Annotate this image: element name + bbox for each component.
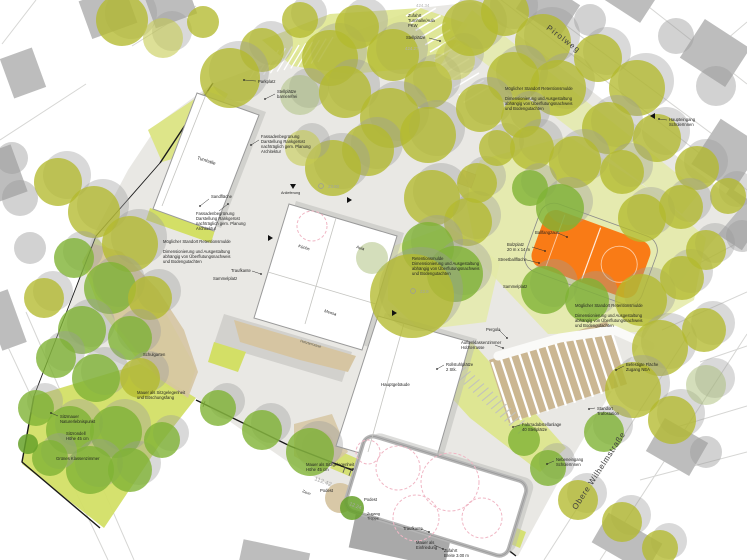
label-stellplätze-leader-dot [439,40,441,42]
tree [187,6,219,38]
label-podest-line: Podest [364,497,378,502]
label-zaun-group: Zaun [302,489,312,496]
label-zufahrt: ZufahrtBreite 3.00 m [444,548,469,558]
context-building [0,289,27,351]
label-podest: Podest [320,488,334,493]
label-parkplatz-leader-dot [243,79,245,81]
tree [658,18,694,54]
label-befestigte-fläche-line: Zugang NEA [626,367,650,372]
label-möglicher-standort-retentionsmulde-line: und Bodengutachten [163,259,202,264]
label-möglicher-standort-retentionsmulde-line: Möglicher Standort Retentionsmulde [163,239,231,244]
label-zugang-line: Zugang [367,512,380,516]
tree [24,278,64,318]
label-sitzmauer-line: Naturerlebnispunkt [60,419,96,424]
label-ballfangzaun: Ballfangzaun [535,230,560,235]
label-grünes-klassenzimmer-group: Grünes Klassenzimmer [56,456,100,461]
label-424-34-group: 424.34 [416,3,430,8]
label-rollstuhlplätze-line: 2 Stk. [446,367,457,372]
label-stellplätze: Stellplätze [406,35,426,40]
label-mauer-als-sitzgelegenheit-line: Höhe 45 cm [306,467,329,472]
tree [696,66,736,106]
label-22-9-line: 22.9 [420,289,429,294]
label-23-60-group: 23.60 [328,184,340,189]
label-streetballfläche: Streetballfläche [498,257,528,262]
label-außenklassenzimmer-leader-dot [502,347,504,349]
label-retentionsmulde-line: und Bodengutachten [412,271,451,276]
label-sammelplatz-group: Sammelplatz [213,276,237,281]
label-möglicher-standort-retentionsmulde-line: Möglicher Standort Retentionsmulde [505,86,573,91]
label-nebeneingang-line: SchülerInnen [556,462,581,467]
label-hauptgebäude-line: Hauptgebäude [381,382,410,387]
label-rollstuhlplätze-leader-dot [436,368,438,370]
label-haupteingang: HaupteingangSchülerInnen [669,117,696,127]
label-grünes-klassenzimmer: Grünes Klassenzimmer [56,456,100,461]
tree [54,238,94,278]
label-sammelplatz-group: Sammelplatz [503,284,527,289]
context-building [0,47,46,98]
tree [521,266,569,314]
label-traufkante-line: Traufkante [231,268,252,273]
label-standort-line: Trafostation [597,411,620,416]
label-sammelplatz-line: Sammelplatz [213,276,237,281]
tree [200,390,236,426]
tree [618,194,666,242]
label-befestigte-fläche-leader-dot [615,369,617,371]
label-streetballfläche-line: Streetballfläche [498,257,528,262]
label-parkplatz-line: Parkplatz [258,79,275,84]
label-zaun-line: Zaun [302,489,312,496]
tree [600,150,644,194]
tree [14,232,46,264]
label-podest: Podest [364,497,378,502]
tree [2,180,38,216]
label-23-60: 23.60 [328,184,340,189]
label-zufahrt-line: Breite 3.00 m [444,553,469,558]
label-haupteingang-leader-dot [658,118,660,120]
label-22-9: 22.9 [420,289,429,294]
label-sammelplatz-line: Sammelplatz [503,284,527,289]
label-podest-group: Podest [364,497,378,502]
label-zufahrt-line: PKW [408,23,418,28]
label-hauptgebäude: Hauptgebäude [381,382,410,387]
tree [96,0,148,46]
label-424-27-line: 424.27 [405,46,419,51]
tree [18,434,38,454]
label-zugang-line: Treppe [367,516,379,520]
label-stellplätze-leader-dot [264,98,266,100]
tree [72,354,120,402]
label-standort-leader-dot [588,408,590,410]
tree [682,308,726,352]
label-stellplätze: Stellplätzebarrierefrei [277,89,297,99]
tree [457,163,497,203]
label-streetballfläche-leader-dot [538,262,540,264]
label-zaun: Zaun [302,489,312,496]
label-zufahrt-group: ZufahrtBreite 3.00 m [444,548,469,558]
label-podest-line: Podest [320,488,334,493]
label-grünes-klassenzimmer-line: Grünes Klassenzimmer [56,456,100,461]
label-parkplatz: Parkplatz [258,79,275,84]
label-pergola-line: Pergola [486,327,501,332]
label-traufkante-leader-dot [260,273,262,275]
tree [686,230,726,270]
label-bolzplatz-line: 20 m x 14 m [507,247,531,252]
tree [0,142,28,174]
label-traufkante: Traufkante [403,526,424,531]
label-23-60-line: 23.60 [328,184,340,189]
tree [648,396,696,444]
label-fahrradabstellanlage-leader-dot [512,426,514,428]
label-424-27: 424.27 [405,46,419,51]
label-fassadenbegrünung-leader-dot [250,144,252,146]
label-pergola-leader-dot [506,337,508,339]
label-zugang-group: ZugangTreppe [367,512,380,520]
label-traufkante-leader-dot [428,531,430,533]
label-424-34: 424.34 [416,3,430,8]
label-stellplätze-line: Stellplätze [406,35,426,40]
label-anlieferung: Anlieferung [281,191,300,195]
label-haupteingang-line: SchülerInnen [669,122,694,127]
label-nebeneingang-leader-dot [546,463,548,465]
label-schulgarten-group: Schulgarten [143,352,166,357]
label-mauer-als-line: Einfriedung [416,545,438,550]
label-traufkante: Traufkante [231,268,252,273]
tree [536,184,584,232]
context-building [603,0,661,23]
tree [510,126,554,170]
tree [200,48,260,108]
label-424-27-group: 424.27 [405,46,419,51]
tree [282,2,318,38]
tree [710,178,746,214]
tree [574,4,606,36]
label-anlieferung-line: Anlieferung [281,191,300,195]
tree [479,130,515,166]
tree [530,450,566,486]
label-22-9-group: 22.9 [420,289,429,294]
label-hauptgebäude-group: Hauptgebäude [381,382,410,387]
label-möglicher-standort-retentionsmulde-line: Möglicher Standort Retentionsmulde [575,303,643,308]
label-podest-group: Podest [320,488,334,493]
tree [36,338,76,378]
tree [456,84,504,132]
label-sammelplatz: Sammelplatz [503,284,527,289]
label-sitzrondell-line: Höhe 45 cm [66,436,89,441]
label-pergola: Pergola [486,327,501,332]
label-mauer-als-sitzgelegenheit-leader-dot [352,468,354,470]
label-möglicher-standort-retentionsmulde-line: und Bodengutachten [575,323,614,328]
tree [143,18,183,58]
label-zugang: ZugangTreppe [367,512,380,520]
label-sandfläche: Sandfläche [211,194,233,199]
label-außenklassenzimmer-line: Holzterrasse [461,345,485,350]
tree [659,185,703,229]
label-traufkante-line: Traufkante [403,526,424,531]
label-sandfläche-line: Sandfläche [211,194,233,199]
label-424-34-line: 424.34 [416,3,430,8]
label-bolzplatz-leader-dot [544,250,546,252]
tree [686,365,726,405]
label-mauer-als-sitzgelegenheit-line: und Böschungsfang [137,395,175,400]
label-stellplätze-line: barrierefrei [277,94,297,99]
label-nebeneingang: NebeneingangSchülerInnen [556,457,584,467]
site-plan: ParkplatzStellplätzebarrierefreiZufahrtT… [0,0,747,560]
label-schulgarten-line: Schulgarten [143,352,166,357]
label-sitzmauer-leader-dot [50,412,52,414]
label-möglicher-standort-retentionsmulde-line: und Bodengutachten [505,106,544,111]
label-sammelplatz: Sammelplatz [213,276,237,281]
tree [602,502,642,542]
label-fassadenbegrünung-line: Architektur [261,149,282,154]
tree [690,436,722,468]
label-anlieferung-group: Anlieferung [281,191,300,195]
tree [400,107,456,163]
label-fassadenbegrünung-leader-dot [227,203,229,205]
label-sandfläche-leader-dot [199,205,201,207]
label-ballfangzaun-leader-dot [566,236,568,238]
site-plan-canvas: ParkplatzStellplätzebarrierefreiZufahrtT… [0,0,747,560]
label-ballfangzaun-line: Ballfangzaun [535,230,560,235]
label-schulgarten: Schulgarten [143,352,166,357]
tree [144,422,180,458]
context-building [238,539,310,560]
parcel-line [2,0,36,44]
label-fahrradabstellanlage-line: 40 Stellplätze [522,427,548,432]
label-fassadenbegrünung-line: Architektur [196,226,217,231]
tree [242,410,282,450]
tree [108,448,152,492]
